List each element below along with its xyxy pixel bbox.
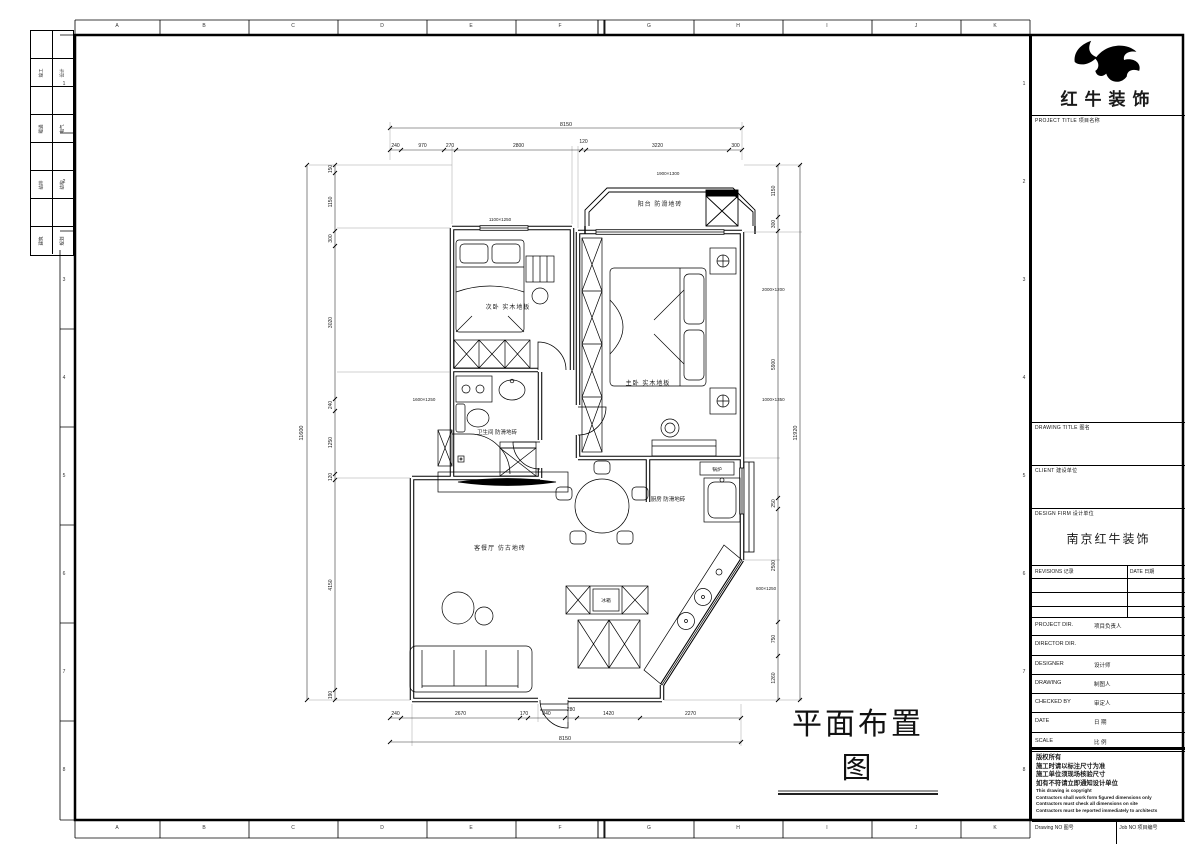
- revision-row: [1032, 579, 1185, 593]
- company-name: 红牛装饰: [1032, 85, 1185, 110]
- dim-label: 1420: [603, 711, 614, 717]
- shower: [452, 434, 510, 474]
- credits-rows: PROJECT DIR. 项目负责人 DIRECTOR DIR. DESIGNE…: [1032, 617, 1185, 752]
- credit-row: CHECKED BY 审定人: [1032, 694, 1185, 713]
- row-label-cn: 审定人: [1094, 699, 1111, 707]
- dim-label: 840: [542, 711, 551, 717]
- ruler-number: 8: [1018, 767, 1030, 773]
- dim-label: 2500: [771, 560, 777, 571]
- row-label-cn: 制图人: [1094, 680, 1111, 688]
- nightstand-1: [710, 248, 736, 274]
- dim-label: 300: [328, 234, 334, 243]
- revisions-section: REVISIONS 记录 DATE 日期: [1032, 565, 1185, 618]
- strip-label: 规划: [60, 236, 66, 245]
- ruler-letter: J: [910, 825, 922, 831]
- note-line: 如有不符请立即通知设计单位: [1036, 780, 1183, 789]
- strip-label: 设计: [60, 68, 66, 77]
- row-label-en: DATE: [1035, 718, 1049, 724]
- ruler-letter: B: [198, 825, 210, 831]
- ruler-number: 4: [58, 375, 70, 381]
- dim-label: 3220: [652, 143, 663, 149]
- ruler-number: 6: [1018, 571, 1030, 577]
- kitchen-counter-stove: [644, 545, 742, 685]
- ruler-letter: H: [732, 23, 744, 29]
- small-dim: 1100×1250: [489, 217, 512, 222]
- ruler-number: 2: [1018, 179, 1030, 185]
- ruler-letter: H: [732, 825, 744, 831]
- title-underline-2: [778, 793, 938, 795]
- dim-label: 4150: [328, 579, 334, 590]
- dim-label: 150: [328, 165, 334, 174]
- strip-label: 建筑: [38, 236, 44, 245]
- dim-label: 170: [520, 711, 529, 717]
- small-dim: 1600×1250: [413, 397, 436, 402]
- room-labels: 阳台 防滑地砖 次卧 实木地板 主卧 实木地板 卫生间 防滑地砖 厨房 防滑地砖…: [413, 171, 785, 604]
- strip-label: 竣工: [38, 68, 44, 77]
- credit-row: DESIGNER 设计师: [1032, 656, 1185, 675]
- ruler-number: 4: [1018, 375, 1030, 381]
- dim-label: 240: [391, 711, 400, 717]
- ruler-letter: I: [821, 825, 833, 831]
- drawing-title-label: DRAWING TITLE 图名: [1035, 424, 1090, 431]
- strip-label: 结构: [60, 180, 66, 189]
- small-dim: 1900×1300: [657, 171, 680, 176]
- dim-label: 270: [446, 143, 455, 149]
- tv-cabinet: [438, 472, 568, 492]
- dim-label: 5900: [771, 359, 777, 370]
- row-label-cn: 比 例: [1094, 738, 1107, 746]
- thick-divider: [1032, 747, 1185, 750]
- bull-logo: [1054, 38, 1164, 86]
- desk-bedroom1: [652, 419, 716, 456]
- dim-label: 300: [731, 143, 740, 149]
- strip-row: [31, 87, 73, 115]
- dimension-labels: 8150 240 970 270 2800 120 3220 300 240 2…: [299, 122, 799, 742]
- dim-label: 970: [418, 143, 427, 149]
- strip-row: [31, 143, 73, 171]
- room-label-bedroom2: 次卧 实木地板: [486, 303, 531, 311]
- main-drawing-title: 平面布置图: [778, 699, 938, 795]
- row-label-en: PROJECT DIR.: [1035, 622, 1073, 628]
- bay-window: [585, 188, 755, 234]
- dim-label: 2800: [513, 143, 524, 149]
- dim-label: 2270: [685, 711, 696, 717]
- label-boiler: 锅炉: [712, 466, 722, 473]
- washer: [456, 376, 492, 402]
- dim-label: 1250: [328, 437, 334, 448]
- dim-label: 1260: [771, 672, 777, 683]
- ruler-letter: C: [287, 825, 299, 831]
- bed-bedroom1: [610, 268, 706, 386]
- note-line: 版权所有: [1036, 754, 1183, 763]
- ruler-number: 8: [58, 767, 70, 773]
- wardrobe-bedroom2: [454, 340, 530, 368]
- strip-label: 给排: [38, 180, 44, 189]
- main-drawing-title-text: 平面布置图: [778, 699, 938, 787]
- revisions-label: REVISIONS 记录: [1035, 568, 1074, 575]
- dim-label: 300: [771, 220, 777, 229]
- ruler-letter: D: [376, 825, 388, 831]
- strip-label: 暖通: [38, 124, 44, 133]
- kitchen-sink: [704, 478, 740, 522]
- row-label-en: CHECKED BY: [1035, 699, 1071, 705]
- room-label-living: 客餐厅 仿古地砖: [474, 544, 526, 552]
- entry-cabinet: [578, 620, 640, 668]
- door-bedroom2: [538, 342, 566, 370]
- drawing-no-section: Drawing NO 图号 Job NO 项目编号: [1032, 821, 1185, 844]
- ruler-number: 3: [1018, 277, 1030, 283]
- ruler-letter: K: [989, 23, 1001, 29]
- row-label-en: DESIGNER: [1035, 661, 1064, 667]
- note-line: 施工时请以标注尺寸为准: [1036, 763, 1183, 772]
- sofa: [410, 646, 532, 692]
- dim-top-overall: 8150: [560, 122, 572, 128]
- dim-label: 280: [567, 707, 576, 713]
- credit-row: DIRECTOR DIR.: [1032, 636, 1185, 655]
- row-label-cn: 日 期: [1094, 718, 1107, 726]
- strip-row: [31, 199, 73, 227]
- dim-label: 250: [771, 499, 777, 508]
- project-title-section: PROJECT TITLE 项目名称: [1032, 115, 1185, 423]
- bed-bedroom2: [456, 240, 524, 332]
- toilet: [456, 404, 489, 432]
- cad-canvas: 8150 240 970 270 2800 120 3220 300 240 2…: [0, 0, 1200, 844]
- bathroom-sink: [499, 379, 525, 400]
- copyright-notes: 版权所有 施工时请以标注尺寸为准 施工单位须现场核验尺寸 如有不符请立即通知设计…: [1036, 754, 1183, 814]
- windows: [480, 226, 754, 552]
- dimension-ticks: [305, 126, 802, 744]
- ruler-letter: C: [287, 23, 299, 29]
- design-firm-label: DESIGN FIRM 设计单位: [1035, 510, 1094, 517]
- dim-label: 190: [328, 691, 334, 700]
- dim-right-overall: 11920: [793, 426, 799, 441]
- ruler-number: 6: [58, 571, 70, 577]
- entry-threshold: [540, 704, 568, 710]
- ruler-letter: G: [643, 825, 655, 831]
- dim-label: 1150: [328, 196, 334, 207]
- small-dim: 1000×1350: [762, 397, 785, 402]
- logo-section: 红牛装饰: [1032, 35, 1185, 116]
- drawing-title-section: DRAWING TITLE 图名: [1032, 422, 1185, 466]
- sheet-frame: [60, 20, 1183, 838]
- room-label-bedroom1: 主卧 实木地板: [626, 379, 671, 387]
- title-underline-1: [778, 790, 938, 792]
- strip-row: 竣工 设计: [31, 59, 73, 87]
- room-label-balcony: 阳台 防滑地砖: [638, 200, 683, 208]
- ruler-letter: D: [376, 23, 388, 29]
- ruler-letter: J: [910, 23, 922, 29]
- bathroom-cabinet: [500, 442, 536, 476]
- row-label-en: DIRECTOR DIR.: [1035, 641, 1076, 647]
- ruler-letter: F: [554, 825, 566, 831]
- drawing-no-label: Drawing NO 图号: [1035, 824, 1074, 831]
- credit-row: PROJECT DIR. 项目负责人: [1032, 617, 1185, 636]
- dim-left-overall: 11600: [299, 426, 305, 441]
- credit-row: DRAWING 制图人: [1032, 675, 1185, 694]
- dim-label: 240: [391, 143, 400, 149]
- ac-label-bar: [706, 190, 738, 196]
- signature-strip: 竣工 设计 暖通 电气 给排 结构 建筑 规划: [30, 30, 74, 256]
- dim-label: 3020: [328, 317, 334, 328]
- ruler-number: 5: [1018, 473, 1030, 479]
- ruler-number: 7: [1018, 669, 1030, 675]
- dim-label: 1150: [771, 185, 777, 196]
- design-firm-name: 南京红牛装饰: [1032, 530, 1185, 547]
- extension-lines: [309, 122, 802, 746]
- ruler-letter: F: [554, 23, 566, 29]
- design-firm-section: DESIGN FIRM 设计单位 南京红牛装饰: [1032, 508, 1185, 566]
- ruler-letter: K: [989, 825, 1001, 831]
- dining-table: [556, 461, 648, 544]
- room-label-bathroom: 卫生间 防滑地砖: [477, 428, 518, 436]
- strip-row: 给排 结构: [31, 171, 73, 199]
- small-dim: 2000×1200: [762, 287, 785, 292]
- note-line: Contractors must be reported immediately…: [1036, 808, 1183, 814]
- nightstand-2: [710, 388, 736, 414]
- title-block: 红牛装饰 PROJECT TITLE 项目名称 DRAWING TITLE 图名…: [1030, 35, 1185, 820]
- ruler-letter: I: [821, 23, 833, 29]
- client-label: CLIENT 建设单位: [1035, 467, 1077, 474]
- strip-label: 电气: [60, 124, 66, 133]
- ruler-letter: B: [198, 23, 210, 29]
- doors: [513, 342, 606, 728]
- date-col-label: DATE 日期: [1130, 568, 1154, 575]
- label-fridge: 冰箱: [601, 597, 611, 604]
- row-label-cn: 项目负责人: [1094, 622, 1122, 630]
- strip-row: 建筑 规划: [31, 227, 73, 254]
- ruler-letter: A: [111, 23, 123, 29]
- revision-row: [1032, 593, 1185, 607]
- dim-label: 750: [771, 635, 777, 644]
- ruler-number: 1: [1018, 81, 1030, 87]
- dim-label: 120: [328, 473, 334, 482]
- dim-label: 120: [579, 139, 588, 145]
- room-label-kitchen: 厨房 防滑地砖: [651, 495, 686, 503]
- dim-label: 240: [328, 401, 334, 410]
- strip-row: 暖通 电气: [31, 115, 73, 143]
- note-line: 施工单位须现场核验尺寸: [1036, 771, 1183, 780]
- ruler-number: 5: [58, 473, 70, 479]
- row-label-en: DRAWING: [1035, 680, 1061, 686]
- row-label-cn: 设计师: [1094, 661, 1111, 669]
- client-section: CLIENT 建设单位: [1032, 465, 1185, 509]
- dimension-lines: [307, 128, 800, 742]
- ruler-letter: A: [111, 825, 123, 831]
- coffee-table: [442, 592, 493, 625]
- row-label-en: SCALE: [1035, 738, 1053, 744]
- walls: [412, 228, 742, 700]
- dim-label: 2670: [455, 711, 466, 717]
- small-dim: 600×1250: [756, 586, 777, 591]
- wardrobe-bedroom1: [582, 238, 602, 452]
- dim-bottom-overall: 8150: [559, 736, 571, 742]
- drawing-sheet: 8150 240 970 270 2800 120 3220 300 240 2…: [0, 0, 1200, 844]
- ruler-letter: E: [465, 23, 477, 29]
- dresser-bedroom2: [526, 256, 554, 304]
- job-no-label: Job NO 项目编号: [1119, 824, 1157, 831]
- ruler-letter: G: [643, 23, 655, 29]
- ruler-letter: E: [465, 825, 477, 831]
- ruler-number: 7: [58, 669, 70, 675]
- strip-row: [31, 31, 73, 59]
- ruler-number: 3: [58, 277, 70, 283]
- credit-row: DATE 日 期: [1032, 713, 1185, 732]
- project-title-label: PROJECT TITLE 项目名称: [1035, 117, 1100, 124]
